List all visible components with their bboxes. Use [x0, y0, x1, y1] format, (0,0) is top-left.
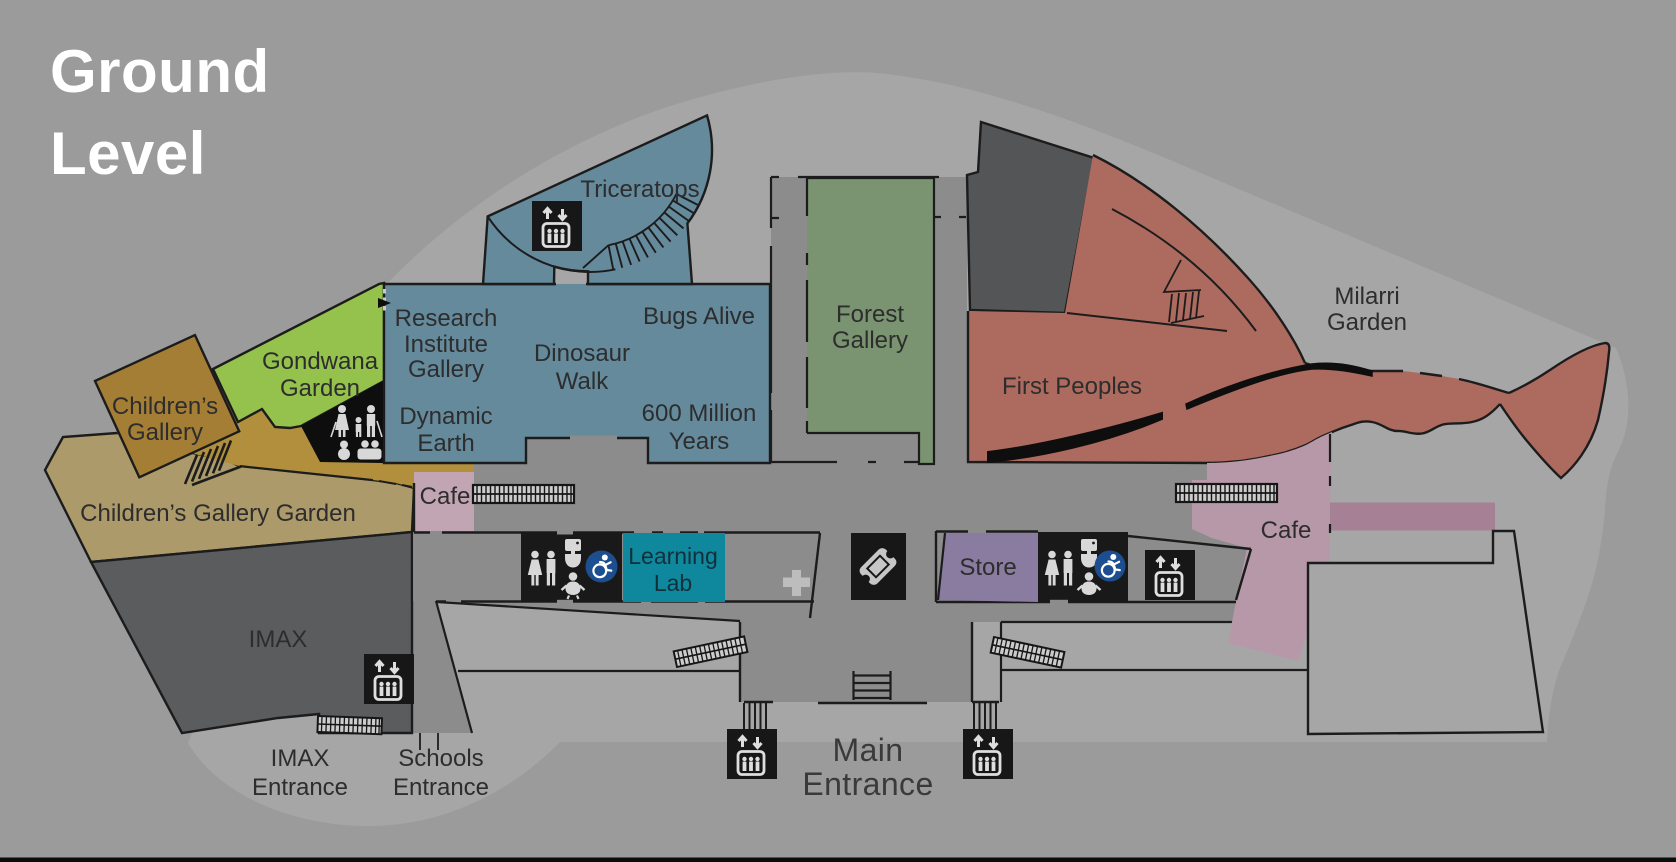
svg-text:Cafe: Cafe: [420, 483, 471, 510]
svg-text:Store: Store: [959, 554, 1016, 581]
svg-text:Dynamic: Dynamic: [399, 403, 492, 430]
svg-text:Children’s Gallery Garden: Children’s Gallery Garden: [80, 500, 356, 527]
svg-text:Gallery: Gallery: [832, 327, 908, 354]
svg-text:Forest: Forest: [836, 301, 904, 328]
svg-text:Ground: Ground: [50, 38, 270, 105]
svg-text:Schools: Schools: [398, 745, 483, 772]
svg-text:Entrance: Entrance: [252, 774, 348, 801]
svg-text:First Peoples: First Peoples: [1002, 373, 1142, 400]
svg-text:Years: Years: [669, 428, 730, 455]
svg-text:Research: Research: [395, 305, 498, 332]
svg-text:Lab: Lab: [654, 570, 692, 596]
svg-text:Entrance: Entrance: [393, 774, 489, 801]
svg-text:Garden: Garden: [1327, 309, 1407, 336]
svg-text:Gallery: Gallery: [408, 356, 484, 383]
svg-text:600 Million: 600 Million: [642, 400, 757, 427]
svg-text:Bugs Alive: Bugs Alive: [643, 303, 755, 330]
svg-text:Gondwana: Gondwana: [262, 348, 379, 375]
svg-text:Walk: Walk: [556, 368, 609, 395]
svg-text:Children’s: Children’s: [112, 393, 218, 420]
svg-text:Level: Level: [50, 120, 206, 187]
svg-text:Dinosaur: Dinosaur: [534, 340, 630, 367]
svg-text:Earth: Earth: [417, 430, 474, 457]
svg-text:Learning: Learning: [628, 543, 718, 569]
svg-text:Cafe: Cafe: [1261, 517, 1312, 544]
svg-text:Institute: Institute: [404, 331, 488, 358]
svg-text:Gallery: Gallery: [127, 419, 203, 446]
svg-text:Milarri: Milarri: [1334, 283, 1399, 310]
svg-text:Entrance: Entrance: [802, 766, 933, 802]
svg-text:Main: Main: [833, 732, 904, 768]
svg-text:Triceratops: Triceratops: [580, 176, 699, 203]
svg-text:Garden: Garden: [280, 375, 360, 402]
svg-text:IMAX: IMAX: [271, 745, 330, 772]
svg-text:IMAX: IMAX: [249, 626, 308, 653]
